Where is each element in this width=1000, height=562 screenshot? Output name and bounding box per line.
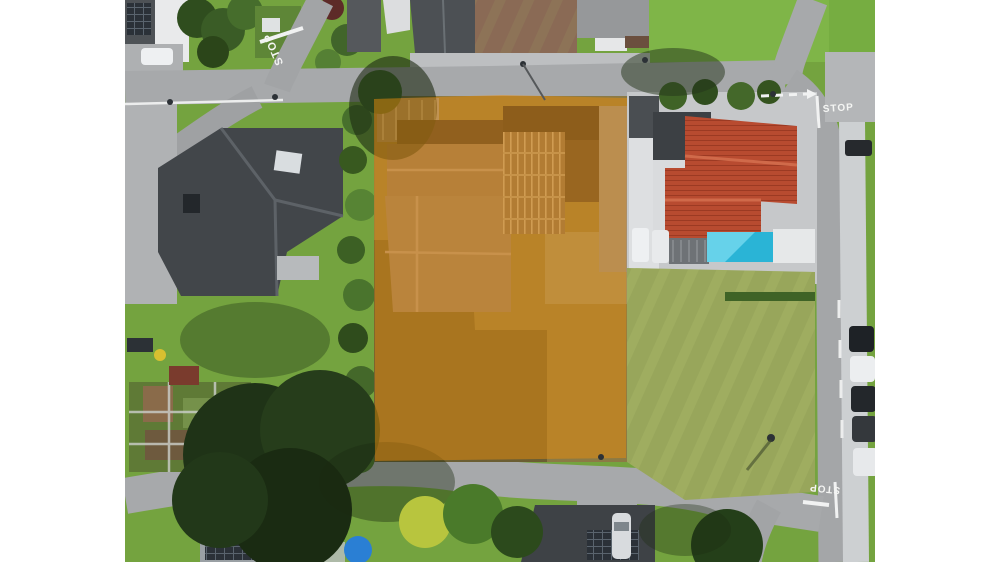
garden-furniture — [127, 338, 153, 352]
aerial-photo-canvas: STOP STOP STOP — [125, 0, 875, 562]
shed-roof-top — [625, 36, 649, 48]
parked-car-2 — [850, 356, 875, 382]
white-van-1 — [632, 228, 649, 262]
stop-marking-top-right: STOP — [822, 102, 854, 115]
white-wall-top — [595, 38, 627, 51]
rooftop-solar-panels — [127, 3, 151, 35]
greenhouse — [262, 18, 280, 32]
patio — [277, 256, 319, 280]
right-courtyard — [627, 79, 817, 284]
stop-line-top-right — [817, 96, 819, 128]
skylight-dark — [183, 194, 200, 213]
aerial-photo-frame: STOP STOP STOP — [0, 0, 1000, 562]
pole-2 — [272, 94, 278, 100]
highlighted-plot-overlay — [374, 95, 627, 461]
dark-car-right-top — [845, 140, 872, 156]
silver-car-windshield — [614, 522, 629, 531]
parked-car-5 — [853, 448, 875, 476]
shadow-courtyard-top — [621, 48, 725, 96]
pole-4 — [642, 57, 648, 63]
white-van-2 — [652, 230, 669, 263]
white-terrace — [773, 229, 815, 263]
concrete-roof-top — [577, 0, 649, 38]
lawn-tree-shadow — [180, 302, 330, 378]
shadow-bottom-right — [639, 504, 731, 556]
pole-5 — [770, 91, 776, 97]
yellow-object — [154, 349, 166, 361]
lawn-top-far-right — [829, 0, 875, 56]
pole-1 — [167, 99, 173, 105]
parked-car-1 — [849, 326, 874, 352]
red-shed-roof — [169, 366, 199, 385]
pole-6 — [598, 454, 604, 460]
parked-car-4 — [852, 416, 875, 442]
hedge-meadow-top — [725, 292, 815, 301]
silver-car — [612, 513, 631, 559]
mowing-stripes — [627, 268, 815, 500]
parked-car-3 — [851, 386, 875, 412]
dark-tree-bottom — [491, 506, 543, 558]
skylight — [274, 150, 303, 173]
gray-roof-building — [347, 0, 381, 52]
aerial-photo: STOP STOP STOP — [125, 0, 875, 562]
white-facade-top — [383, 0, 410, 34]
yellow-green-tree — [399, 496, 451, 548]
white-van-top-left — [141, 48, 173, 65]
right-meadow — [627, 268, 815, 500]
